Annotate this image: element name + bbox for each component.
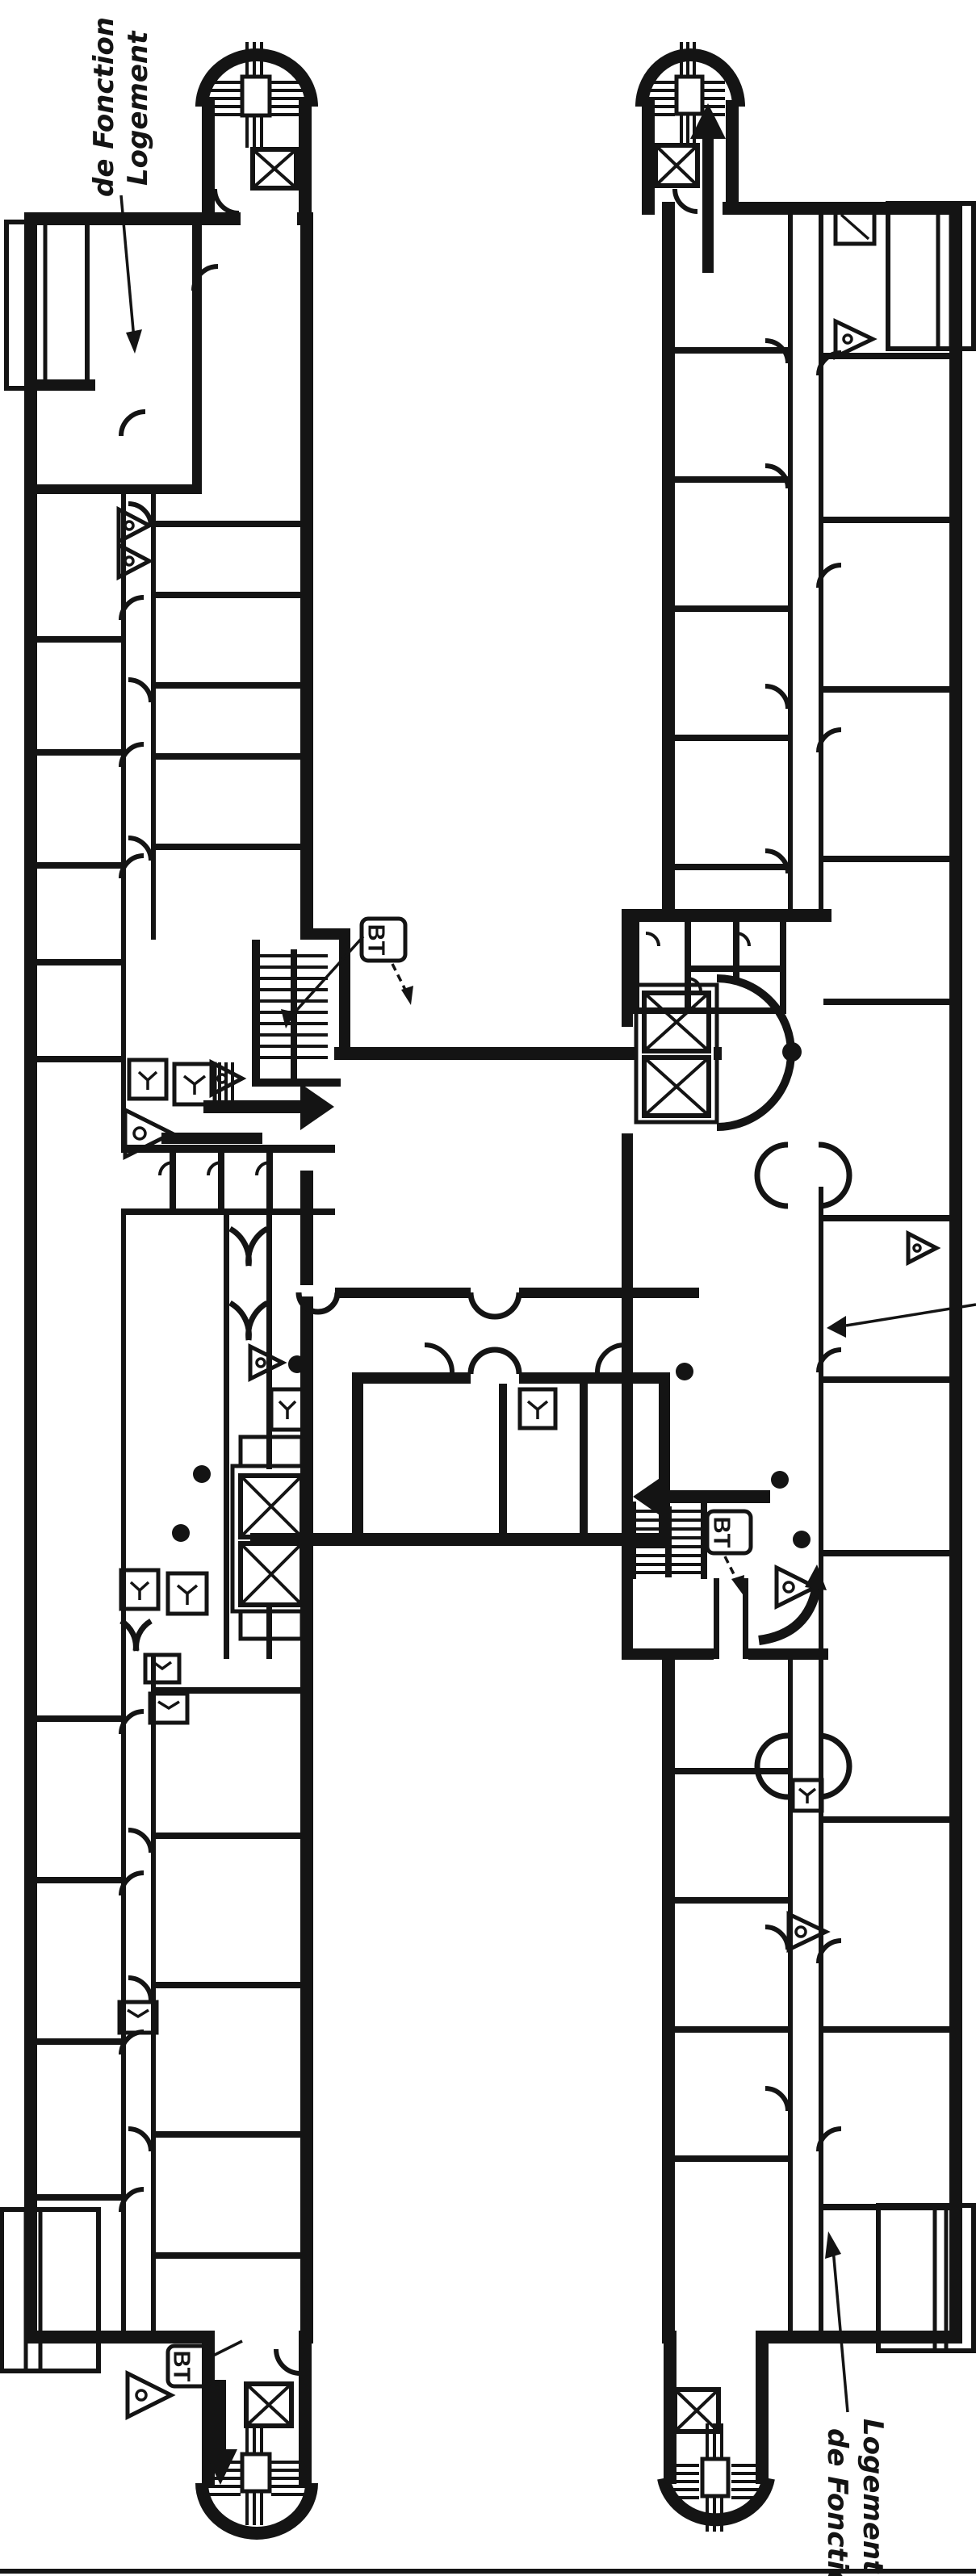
tower-bottom-left bbox=[202, 2331, 312, 2533]
elevator-icon bbox=[253, 149, 296, 188]
arrowhead-icon bbox=[825, 2231, 841, 2259]
sink-icon bbox=[520, 1389, 555, 1428]
stairs-icon bbox=[207, 42, 305, 148]
floor-plan: BT BT BT Logement de Fonction Logement d… bbox=[0, 0, 976, 2576]
arrowhead-icon bbox=[401, 986, 413, 1005]
sink-icon bbox=[145, 1655, 179, 1682]
elevator-icon bbox=[241, 1476, 302, 1537]
floorplan-sheet: BT BT BT Logement de Fonction Logement d… bbox=[0, 0, 976, 2576]
elevator-icon bbox=[644, 993, 709, 1051]
logement-top-line1: Logement bbox=[122, 30, 154, 186]
tower-top-right bbox=[642, 42, 739, 273]
lobby-swing-doors bbox=[717, 978, 802, 1127]
terrace-top-left bbox=[6, 222, 87, 388]
tower-top-left bbox=[202, 42, 312, 224]
sink-icon bbox=[174, 1064, 215, 1104]
bt-text: BT bbox=[708, 1517, 734, 1548]
double-door-icons bbox=[121, 1145, 849, 1797]
bt-text: BT bbox=[362, 924, 388, 956]
door-pivot-dot bbox=[782, 1042, 802, 1062]
elevator-icon bbox=[241, 1544, 302, 1605]
arrowhead-icon bbox=[827, 1316, 846, 1338]
sink-icon bbox=[129, 1060, 166, 1099]
right-wing-walls bbox=[662, 202, 962, 2344]
fire-triangle-icon bbox=[908, 1234, 936, 1263]
fire-triangle-icon bbox=[128, 2373, 171, 2417]
elevator-icon bbox=[246, 2384, 291, 2426]
sheet-border-line bbox=[0, 2569, 976, 2574]
logement-label-top: Logement de Fonction bbox=[88, 17, 154, 354]
bt-text: BT bbox=[168, 2351, 194, 2382]
logement-bottom-line1: Logement bbox=[857, 2419, 889, 2574]
elevator-icon bbox=[656, 145, 697, 186]
elevator-core-right bbox=[636, 985, 717, 1122]
logement-top-line2: de Fonction bbox=[88, 17, 120, 197]
sink-icon bbox=[793, 1780, 822, 1811]
sink-icon bbox=[121, 1570, 158, 1609]
logement-bottom-line2: de Fonction bbox=[821, 2428, 853, 2576]
arrowhead-icon bbox=[731, 1575, 744, 1594]
arrowhead-icon bbox=[126, 329, 142, 354]
elevator-icon bbox=[675, 2390, 718, 2431]
triangle-markers bbox=[119, 321, 936, 2417]
tower-bottom-right bbox=[664, 2331, 769, 2532]
sink-icon bbox=[168, 1573, 207, 1614]
sink-icon bbox=[271, 1389, 304, 1430]
terrace-bottom-left bbox=[2, 2209, 98, 2371]
elevator-icon bbox=[644, 1058, 709, 1116]
door-arc bbox=[215, 189, 239, 213]
